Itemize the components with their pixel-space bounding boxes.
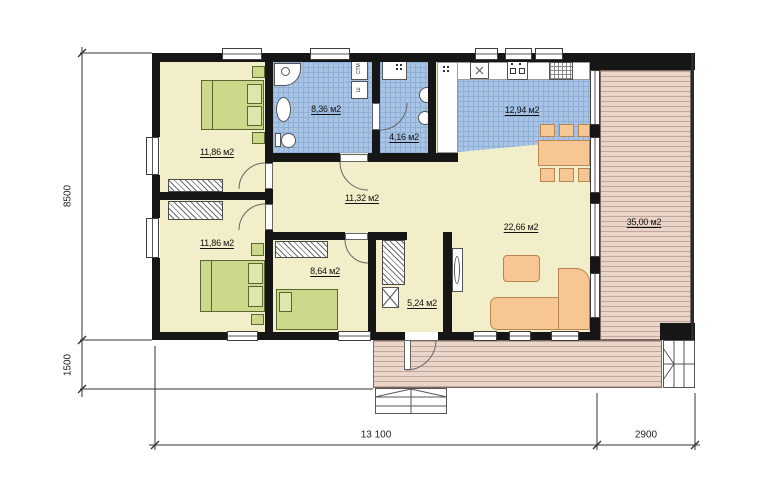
- x-marks: [382, 67, 483, 307]
- plan-linework: [0, 0, 784, 502]
- room-label-entrance-hall: 5,24 м2: [407, 298, 437, 308]
- room-label-bedroom-1: 11,86 м2: [200, 147, 234, 157]
- door-arcs: [239, 103, 436, 370]
- dim-height-porch: 1500: [63, 354, 74, 376]
- room-label-living-room: 22,66 м2: [504, 222, 539, 232]
- room-label-hall: 11,32 м2: [345, 193, 379, 203]
- room-label-wc: 4,16 м2: [389, 132, 419, 142]
- room-label-kids-room: 8,64 м2: [310, 266, 340, 276]
- room-label-kitchen: 12,94 м2: [505, 105, 540, 115]
- room-label-bathroom: 8,36 м2: [311, 104, 341, 114]
- dim-height-main: 8500: [63, 185, 74, 207]
- floor-plan-canvas: СТМ Ш: [0, 0, 784, 502]
- dim-width-main: 13 100: [361, 430, 392, 441]
- room-label-terrace: 35,00 м2: [627, 217, 662, 227]
- stair-marks: [375, 340, 695, 414]
- dim-width-terrace: 2900: [635, 430, 657, 441]
- dimension-lines: [78, 47, 700, 450]
- room-label-bedroom-2: 11,86 м2: [200, 238, 234, 248]
